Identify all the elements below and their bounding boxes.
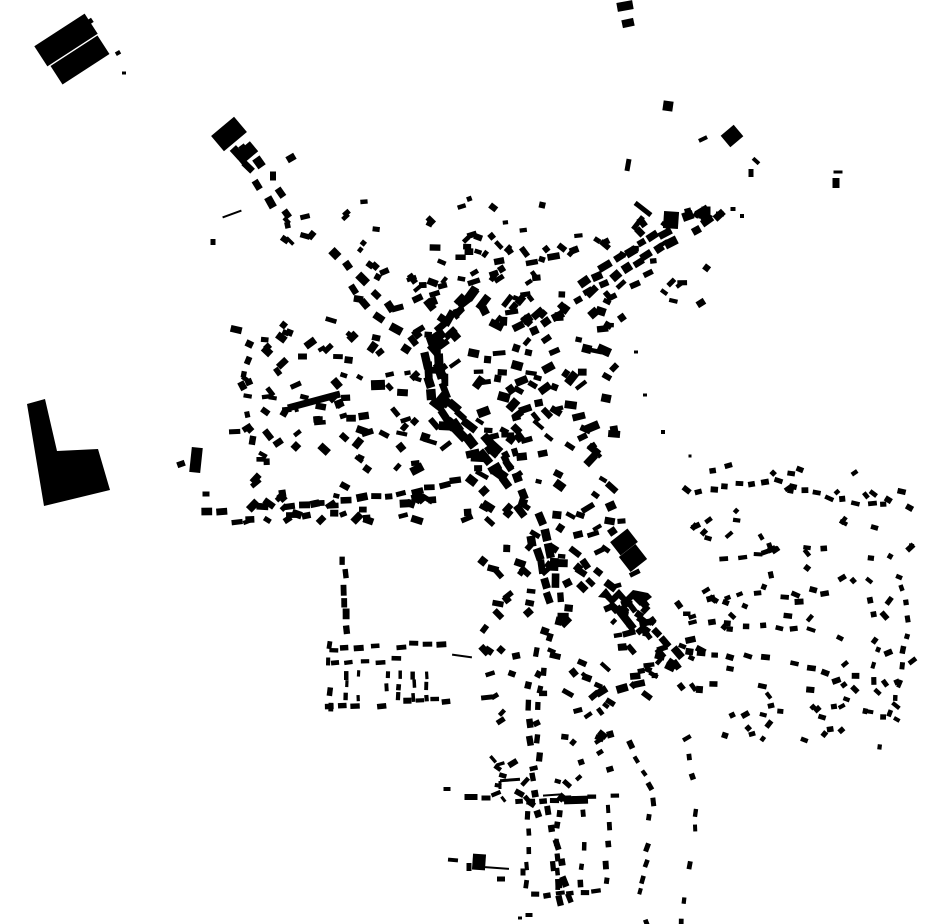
figure-ground-map — [0, 0, 930, 924]
building-footprints-layer — [0, 0, 930, 924]
